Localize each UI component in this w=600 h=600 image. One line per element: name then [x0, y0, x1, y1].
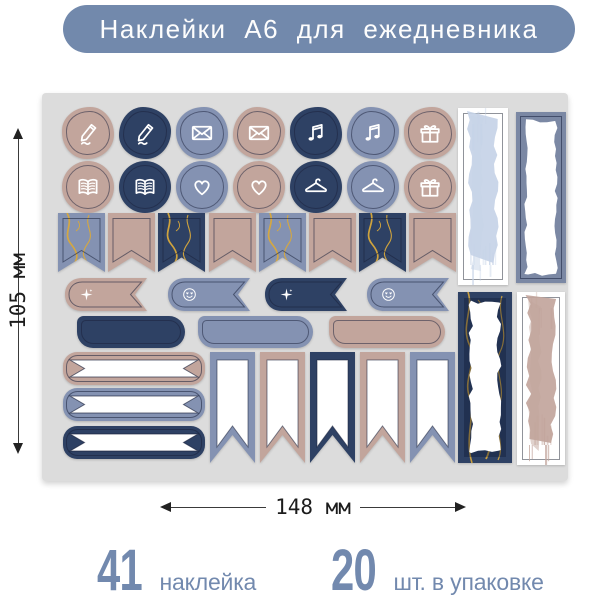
sticker-circle-music [347, 107, 399, 159]
sticker-banner [63, 352, 205, 385]
height-dimension-label: 105 мм [6, 253, 30, 329]
flag-shape [158, 213, 205, 272]
sticker-circle-pencil [119, 107, 171, 159]
flag-shape [359, 213, 406, 272]
stat-sticker-count: 41 наклейка [97, 542, 256, 600]
height-dimension: 105 мм [4, 128, 32, 454]
sticker-circle-music [290, 107, 342, 159]
width-dimension: 148 мм [160, 496, 466, 518]
flag-shape [209, 213, 256, 272]
banner-shape [63, 352, 205, 385]
inner-outline [351, 165, 395, 209]
sticker-count: 41 [97, 542, 142, 600]
sticker-count-label: наклейка [160, 569, 257, 596]
sticker-flag-plain [409, 213, 456, 272]
inner-outline [66, 165, 110, 209]
arrow-right-icon [455, 502, 466, 512]
sticker-panel-brush-tan [517, 292, 565, 465]
width-dimension-label: 148 мм [275, 495, 351, 519]
inner-outline [180, 111, 224, 155]
sticker-circle-envelope [233, 107, 285, 159]
flag-shape [58, 213, 105, 272]
inner-outline [123, 165, 167, 209]
inner-outline [66, 111, 110, 155]
sticker-tag [329, 316, 445, 348]
stat-pack-count: 20 шт. в упаковке [331, 542, 544, 600]
inner-outline [408, 111, 452, 155]
inner-outline [237, 165, 281, 209]
flag-shape [309, 213, 356, 272]
title-banner: Наклейки А6 для ежедневника [63, 5, 575, 53]
pennant-shape [210, 352, 255, 463]
pennant-shape [410, 352, 455, 463]
banner-shape [63, 388, 205, 421]
pack-count: 20 [331, 542, 376, 600]
sticker-flag-plain [108, 213, 155, 272]
sticker-flag-marble [359, 213, 406, 272]
sticker-panel-marble [458, 292, 512, 463]
arrow-up-icon [13, 128, 23, 139]
inner-outline [202, 320, 309, 344]
flag-shape [108, 213, 155, 272]
sticker-pennant [210, 352, 255, 463]
pennant-shape [260, 352, 305, 463]
sticker-panel-brush-blue [458, 108, 508, 285]
sticker-circle-envelope [176, 107, 228, 159]
inner-outline [180, 165, 224, 209]
flag-shape [409, 213, 456, 272]
sticker-pennant [410, 352, 455, 463]
sticker-pennant [260, 352, 305, 463]
arrow-down-icon [13, 443, 23, 454]
sticker-banner [63, 388, 205, 421]
sticker-circle-pencil [62, 107, 114, 159]
inner-outline [294, 111, 338, 155]
panel-shape [517, 292, 565, 465]
inner-outline [81, 320, 181, 344]
sticker-flag-plain [309, 213, 356, 272]
sticker-sheet [42, 93, 568, 481]
pennant-shape [310, 352, 355, 463]
page-title: Наклейки А6 для ежедневника [100, 14, 539, 45]
banner-shape [63, 426, 205, 459]
ribbon-shape [367, 278, 449, 311]
dimension-line [171, 507, 266, 508]
flag-shape [259, 213, 306, 272]
sticker-circle-gift [404, 107, 456, 159]
sticker-flag-marble [259, 213, 306, 272]
arrow-left-icon [160, 502, 171, 512]
sticker-panel-frame [516, 112, 566, 283]
ribbon-shape [168, 278, 250, 311]
inner-outline [351, 111, 395, 155]
sticker-circle-hanger [347, 161, 399, 213]
inner-outline [408, 165, 452, 209]
panel-shape [458, 108, 508, 285]
pennant-shape [360, 352, 405, 463]
sticker-tag [198, 316, 313, 348]
sticker-circle-book [119, 161, 171, 213]
ribbon-shape [65, 278, 147, 311]
sticker-flag-marble [58, 213, 105, 272]
sticker-banner [63, 426, 205, 459]
sticker-circle-gift [404, 161, 456, 213]
product-image: Наклейки А6 для ежедневника 105 мм 148 м… [0, 0, 600, 600]
sticker-circle-heart [233, 161, 285, 213]
sticker-flag-marble [158, 213, 205, 272]
sticker-flag-plain [209, 213, 256, 272]
panel-shape [458, 292, 512, 463]
sticker-circle-heart [176, 161, 228, 213]
inner-outline [237, 111, 281, 155]
ribbon-shape [265, 278, 347, 311]
inner-outline [294, 165, 338, 209]
dimension-line [360, 507, 455, 508]
sticker-pennant [310, 352, 355, 463]
sticker-ribbon-sparkle [65, 278, 147, 311]
sticker-ribbon-smiley [168, 278, 250, 311]
sticker-ribbon-sparkle [265, 278, 347, 311]
sticker-ribbon-smiley [367, 278, 449, 311]
inner-outline [123, 111, 167, 155]
panel-shape [516, 112, 566, 283]
sticker-circle-hanger [290, 161, 342, 213]
inner-outline [333, 320, 441, 344]
sticker-pennant [360, 352, 405, 463]
sticker-tag [77, 316, 185, 348]
sticker-circle-book [62, 161, 114, 213]
pack-count-label: шт. в упаковке [394, 569, 544, 596]
